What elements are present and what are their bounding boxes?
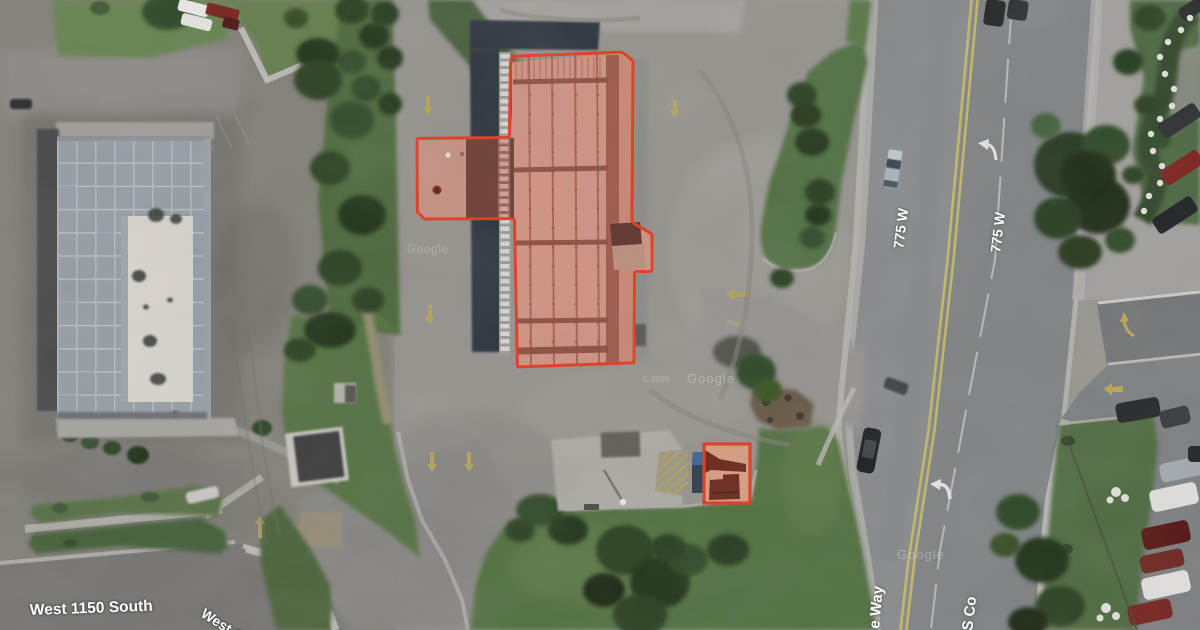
svg-text:© 2009: © 2009 [642, 374, 670, 384]
svg-text:Google: Google [687, 371, 735, 386]
svg-text:Google: Google [897, 547, 945, 562]
svg-text:Google: Google [407, 244, 449, 256]
